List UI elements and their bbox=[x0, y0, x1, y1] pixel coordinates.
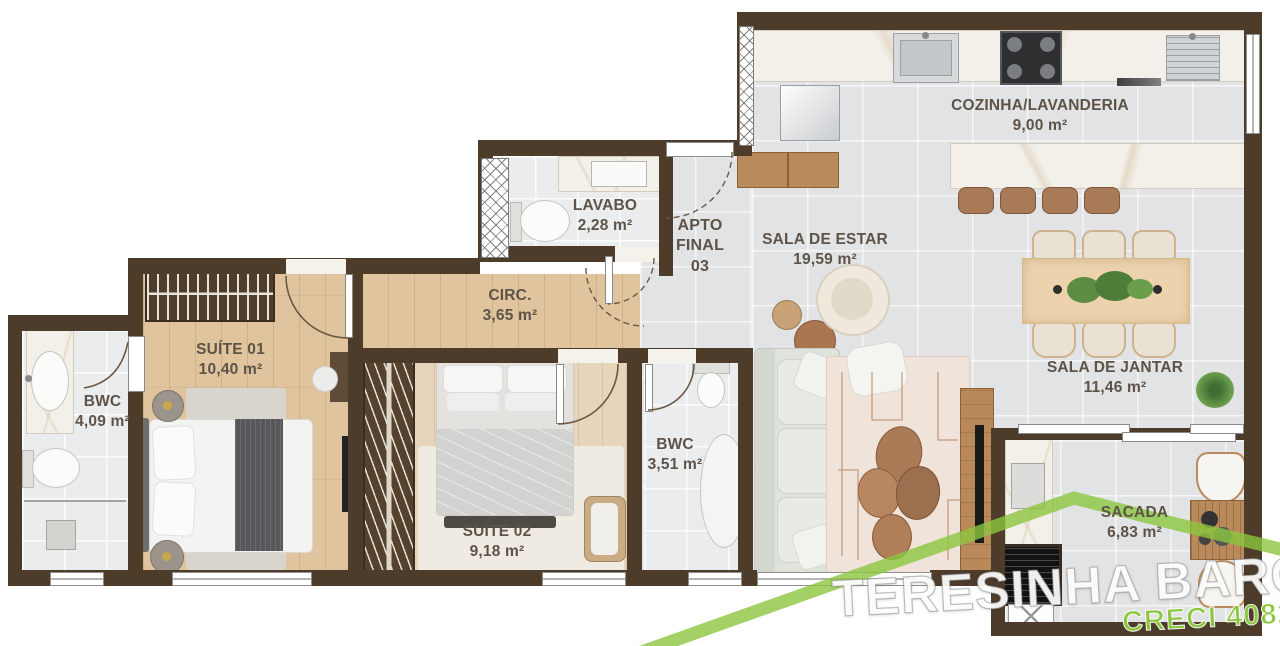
room-area: 3,65 m² bbox=[450, 306, 570, 326]
room-name: BWC bbox=[625, 435, 725, 455]
plate bbox=[1199, 533, 1211, 545]
bwc-social-door-opening bbox=[648, 349, 696, 363]
desk-chair bbox=[312, 366, 338, 392]
pillow bbox=[505, 393, 557, 411]
blanket bbox=[437, 429, 573, 515]
suite01-door-opening bbox=[286, 259, 346, 274]
label-apto-final: APTO FINAL 03 bbox=[660, 216, 740, 277]
label-lavabo: LAVABO 2,28 m² bbox=[545, 196, 665, 236]
pillow bbox=[152, 425, 197, 481]
pillow bbox=[152, 481, 197, 537]
room-name: SALA DE JANTAR bbox=[1010, 358, 1220, 378]
room-area: 10,40 m² bbox=[168, 360, 293, 380]
room-area: 19,59 m² bbox=[740, 250, 910, 270]
table-decor bbox=[1153, 285, 1162, 294]
dining-chair bbox=[1082, 320, 1126, 358]
balcony-sliding-door-panel bbox=[1190, 424, 1244, 434]
room-name: SALA DE ESTAR bbox=[740, 230, 910, 250]
balcony-sliding-door-panel bbox=[1018, 424, 1130, 434]
burner bbox=[1007, 64, 1022, 79]
floor-plan: { "unit": { "line1": "APTO", "line2": "F… bbox=[0, 0, 1280, 646]
dining-table bbox=[1022, 258, 1190, 324]
island-stool bbox=[1000, 187, 1036, 214]
island-stool bbox=[1042, 187, 1078, 214]
dining-chair bbox=[1132, 320, 1176, 358]
side-table bbox=[772, 300, 802, 330]
refrigerator bbox=[780, 85, 840, 141]
label-cozinha: COZINHA/LAVANDERIA 9,00 m² bbox=[940, 96, 1140, 136]
toilet-bowl bbox=[32, 448, 80, 488]
stove-cooktop bbox=[1000, 31, 1062, 85]
wall-left-outer bbox=[8, 315, 22, 586]
burner bbox=[1040, 37, 1055, 52]
label-suite01: SUÍTE 01 10,40 m² bbox=[168, 340, 293, 380]
window-suite01 bbox=[172, 572, 312, 586]
unit-line: APTO bbox=[660, 216, 740, 236]
room-area: 6,83 m² bbox=[1072, 523, 1197, 543]
label-suite02: SUÍTE 02 9,18 m² bbox=[432, 522, 562, 562]
kitchen-island bbox=[950, 143, 1246, 189]
label-sala-jantar: SALA DE JANTAR 11,46 m² bbox=[1010, 358, 1220, 398]
chaise-cushion bbox=[591, 503, 618, 555]
kitchen-sink bbox=[893, 33, 959, 83]
suite02-door-opening bbox=[558, 349, 618, 363]
label-bwc-suite: BWC 4,09 m² bbox=[55, 392, 150, 432]
armchair bbox=[816, 264, 890, 336]
room-area: 9,00 m² bbox=[940, 116, 1140, 136]
bed-runner bbox=[235, 419, 283, 551]
nightstand-decor bbox=[163, 401, 172, 410]
tub-faucet bbox=[1189, 33, 1196, 40]
service-door-hatch bbox=[739, 26, 754, 146]
bwc-social-door-leaf bbox=[645, 364, 653, 412]
room-name: COZINHA/LAVANDERIA bbox=[940, 96, 1140, 116]
room-area: 11,46 m² bbox=[1010, 378, 1220, 398]
bwc-suite-door-leaf bbox=[128, 336, 145, 392]
label-sacada: SACADA 6,83 m² bbox=[1072, 503, 1197, 543]
label-bwc-social: BWC 3,51 m² bbox=[625, 435, 725, 475]
toilet-bowl bbox=[697, 372, 725, 408]
bwc-suite-toilet bbox=[22, 448, 84, 488]
vanity-faucet bbox=[25, 375, 32, 382]
lavabo-door-leaf bbox=[605, 256, 613, 304]
wall-bottom-outer bbox=[8, 570, 757, 586]
wall-bwc-suite-top bbox=[8, 315, 140, 331]
plate bbox=[1201, 511, 1218, 528]
room-name: SUÍTE 02 bbox=[432, 522, 562, 542]
nightstand bbox=[152, 390, 184, 422]
wall-bwc-living-divider bbox=[738, 348, 753, 586]
suite01-bed bbox=[137, 418, 312, 552]
nightstand-decor bbox=[162, 552, 171, 561]
room-area: 9,18 m² bbox=[432, 542, 562, 562]
balcony-sink bbox=[1011, 463, 1045, 509]
centerpiece-plant bbox=[1127, 279, 1153, 299]
kitchen-faucet bbox=[922, 32, 929, 39]
tv-panel bbox=[960, 388, 994, 574]
balcony-chair bbox=[1196, 452, 1246, 504]
burner bbox=[1040, 64, 1055, 79]
nightstand bbox=[150, 540, 184, 574]
room-name: BWC bbox=[55, 392, 150, 412]
balcony-counter bbox=[1005, 434, 1053, 548]
suite02-door-leaf bbox=[556, 364, 564, 424]
room-area: 3,51 m² bbox=[625, 455, 725, 475]
room-name: SACADA bbox=[1072, 503, 1197, 523]
island-stool bbox=[958, 187, 994, 214]
suite02-chaise bbox=[584, 496, 626, 562]
room-area: 4,09 m² bbox=[55, 412, 150, 432]
dining-chair bbox=[1032, 320, 1076, 358]
room-name: CIRC. bbox=[450, 286, 570, 306]
label-circulacao: CIRC. 3,65 m² bbox=[450, 286, 570, 326]
armchair-cushion bbox=[831, 278, 873, 320]
sofa-back bbox=[755, 349, 775, 573]
room-area: 2,28 m² bbox=[545, 216, 665, 236]
label-sala-estar: SALA DE ESTAR 19,59 m² bbox=[740, 230, 910, 270]
shower-head bbox=[46, 520, 76, 550]
suite02-bed bbox=[436, 358, 574, 516]
coffee-table bbox=[872, 514, 912, 560]
room-name: LAVABO bbox=[545, 196, 665, 216]
window-bwc-suite bbox=[50, 572, 104, 586]
lavabo-basin bbox=[591, 161, 647, 187]
kitchen-window bbox=[1246, 34, 1260, 134]
shower-divider bbox=[24, 500, 126, 502]
laundry-tub bbox=[1166, 35, 1220, 81]
window-suite02 bbox=[542, 572, 626, 586]
window-bwc-social bbox=[688, 572, 742, 586]
kitchen-sink-basin bbox=[900, 40, 952, 76]
unit-line: FINAL bbox=[660, 236, 740, 256]
bwc-social-toilet bbox=[690, 362, 730, 408]
lavabo-counter bbox=[558, 156, 660, 192]
suite01-door-leaf bbox=[345, 274, 353, 338]
lavabo-door-opening bbox=[615, 247, 659, 262]
island-stool bbox=[1084, 187, 1120, 214]
ottoman-pouf bbox=[844, 339, 910, 398]
suite01-closet bbox=[145, 266, 275, 322]
unit-line: 03 bbox=[660, 257, 740, 277]
table-decor bbox=[1053, 285, 1062, 294]
suite02-wardrobe bbox=[363, 354, 415, 578]
kitchen-shelf bbox=[1117, 78, 1161, 86]
room-name: SUÍTE 01 bbox=[168, 340, 293, 360]
wall-kitchen-top bbox=[737, 12, 1262, 30]
plate bbox=[1213, 527, 1232, 546]
entry-door-leaf bbox=[666, 142, 734, 157]
lavabo-shaft-hatch bbox=[481, 158, 509, 258]
pillow bbox=[447, 393, 499, 411]
entry-cabinet bbox=[737, 152, 839, 188]
pillow bbox=[443, 365, 503, 393]
burner bbox=[1007, 37, 1022, 52]
tv-screen bbox=[975, 425, 984, 543]
